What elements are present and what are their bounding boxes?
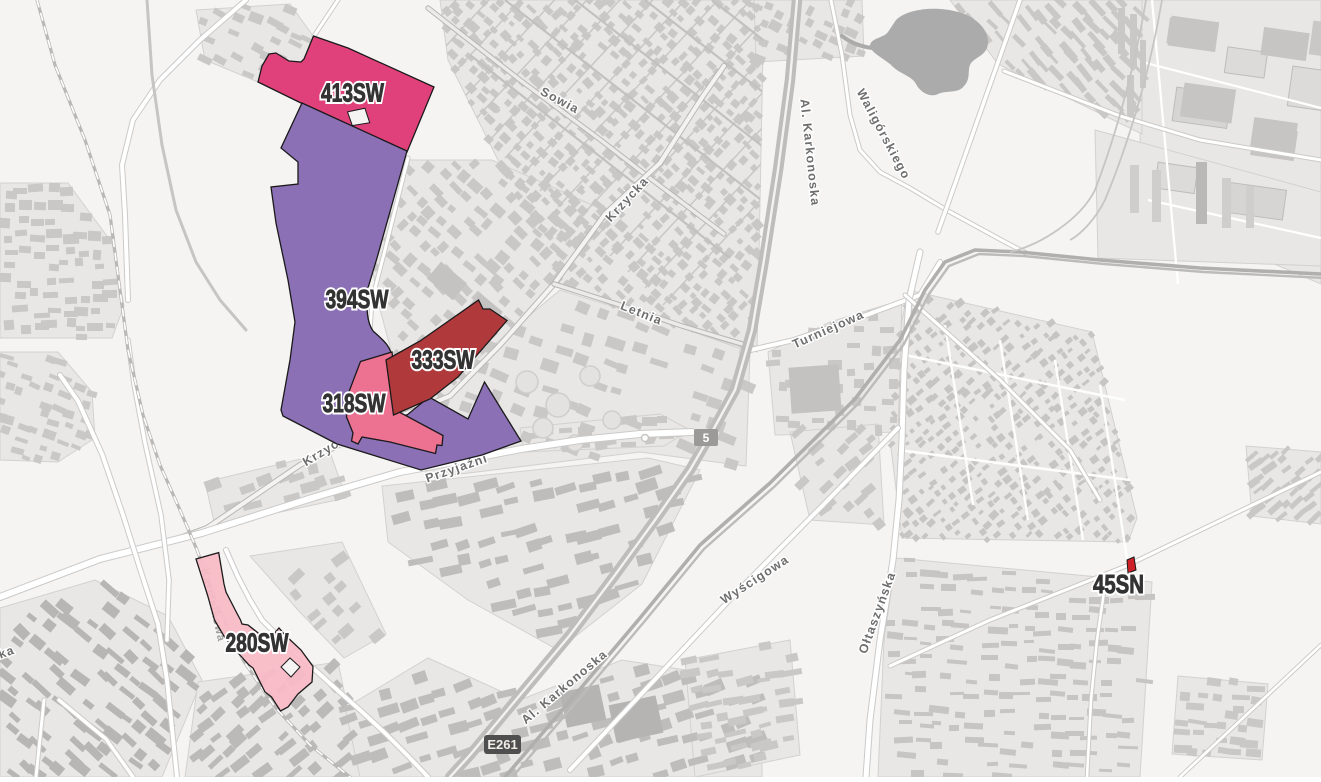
- svg-text:45SN: 45SN: [1093, 569, 1144, 599]
- svg-text:333SW: 333SW: [412, 345, 475, 375]
- svg-text:318SW: 318SW: [323, 388, 386, 418]
- svg-text:5: 5: [703, 431, 710, 445]
- svg-text:394SW: 394SW: [326, 284, 389, 314]
- svg-text:E261: E261: [487, 737, 517, 752]
- svg-text:280SW: 280SW: [226, 628, 289, 658]
- svg-text:413SW: 413SW: [321, 78, 384, 108]
